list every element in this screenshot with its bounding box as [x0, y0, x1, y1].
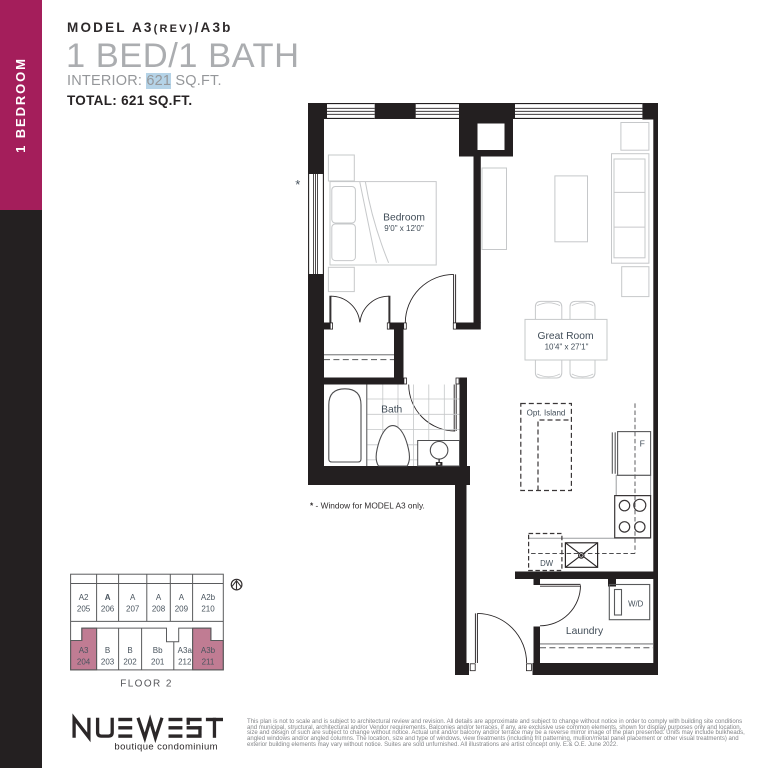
svg-text:A3a: A3a	[178, 646, 193, 655]
svg-text:Bath: Bath	[381, 405, 402, 416]
svg-text:F: F	[640, 439, 645, 449]
svg-text:*: *	[295, 177, 300, 192]
svg-text:207: 207	[126, 605, 140, 614]
svg-text:A3: A3	[79, 646, 89, 655]
svg-text:W/D: W/D	[628, 600, 644, 609]
svg-text:FLOOR 2: FLOOR 2	[120, 679, 173, 690]
svg-text:9'0" x 12'0": 9'0" x 12'0"	[384, 224, 424, 233]
svg-text:10'4" x 27'1": 10'4" x 27'1"	[545, 343, 589, 352]
svg-text:211: 211	[202, 658, 215, 667]
svg-text:201: 201	[151, 658, 165, 667]
svg-text:A: A	[156, 593, 162, 602]
svg-text:203: 203	[101, 658, 115, 667]
svg-text:202: 202	[123, 658, 137, 667]
svg-text:208: 208	[152, 605, 166, 614]
svg-text:A: A	[105, 593, 111, 602]
svg-text:A3b: A3b	[201, 646, 216, 655]
svg-text:B: B	[105, 646, 110, 655]
svg-text:Bedroom: Bedroom	[383, 213, 425, 224]
svg-text:boutique condominium: boutique condominium	[114, 742, 218, 753]
svg-text:DW: DW	[540, 559, 554, 568]
svg-text:Laundry: Laundry	[566, 626, 604, 637]
svg-text:210: 210	[201, 605, 215, 614]
svg-text:A2b: A2b	[201, 593, 216, 602]
svg-text:209: 209	[175, 605, 189, 614]
svg-text:Bb: Bb	[153, 646, 163, 655]
svg-text:212: 212	[178, 658, 192, 667]
svg-text:B: B	[127, 646, 132, 655]
svg-text:A2: A2	[79, 593, 89, 602]
svg-text:Great Room: Great Room	[537, 331, 593, 342]
svg-text:* - Window for MODEL A3 only.: * - Window for MODEL A3 only.	[310, 501, 425, 511]
svg-text:A: A	[130, 593, 136, 602]
svg-text:205: 205	[77, 605, 91, 614]
svg-text:Opt. Island: Opt. Island	[527, 409, 566, 418]
svg-text:204: 204	[77, 658, 91, 667]
svg-text:206: 206	[101, 605, 115, 614]
svg-text:A: A	[179, 593, 185, 602]
